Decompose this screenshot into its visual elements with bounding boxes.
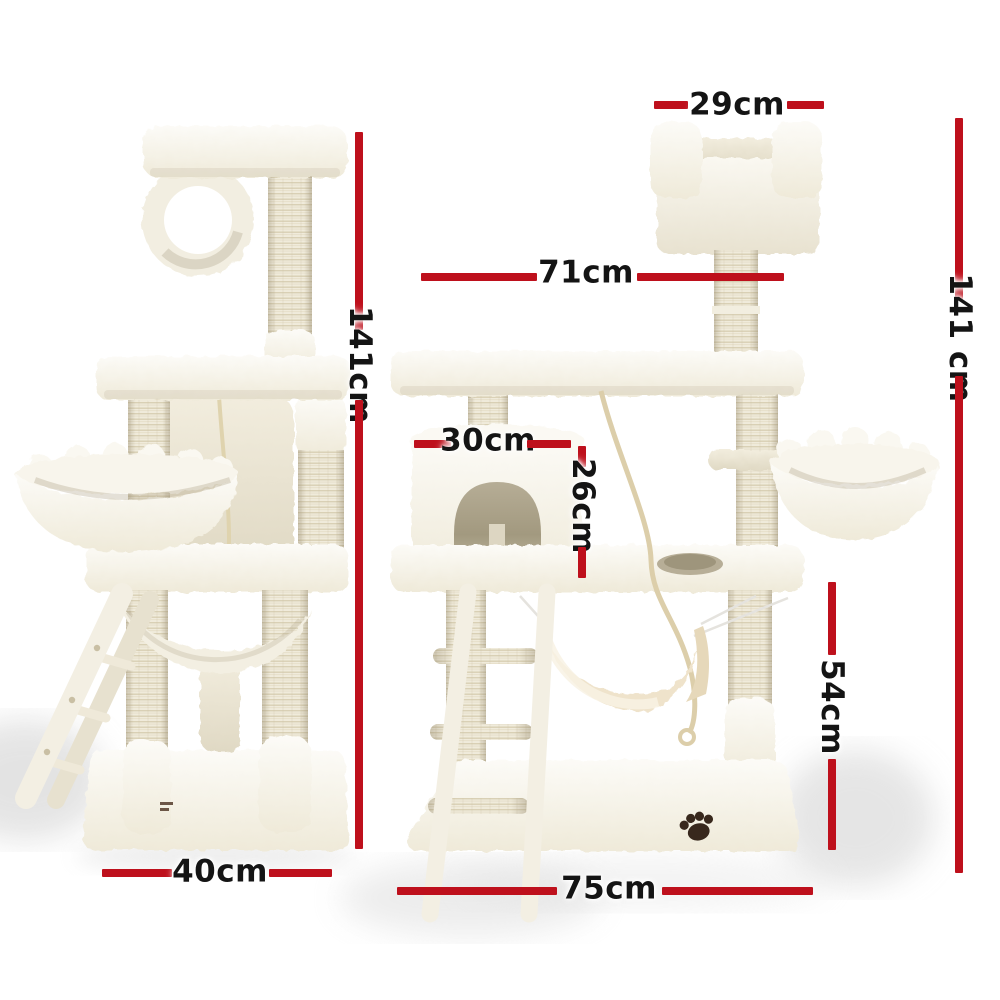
- dimension-line-segment: [654, 101, 688, 109]
- product-dimension-diagram: 29cm 71cm 141cm 141 cm 30cm 26cm 54cm 40…: [0, 0, 1000, 1000]
- top-perch: [650, 122, 822, 254]
- dimension-line-segment: [421, 273, 537, 281]
- dimension-line-segment: [662, 887, 813, 895]
- dimension-line-segment: [828, 582, 836, 655]
- dimension-label: 71cm: [538, 255, 634, 291]
- hammock-front: [538, 616, 709, 711]
- dimension-line-segment: [102, 869, 172, 877]
- dimension-line-segment: [955, 376, 963, 873]
- dimension-label: 54cm: [814, 659, 850, 755]
- play-ring: [142, 164, 254, 276]
- dimension-label: 40cm: [172, 854, 268, 890]
- basket-front: [770, 427, 940, 540]
- dimension-label: 26cm: [565, 458, 601, 554]
- dimension-label: 75cm: [561, 871, 657, 907]
- dimension-label: 29cm: [689, 87, 785, 123]
- dimension-line-segment: [828, 759, 836, 850]
- dimension-line-segment: [355, 400, 363, 849]
- dimension-label: 30cm: [440, 423, 536, 459]
- dimension-line-segment: [397, 887, 557, 895]
- dimension-line-segment: [637, 273, 784, 281]
- dimension-line-segment: [787, 101, 824, 109]
- cat-tree-illustration: [0, 0, 1000, 1000]
- dimension-line-segment: [355, 132, 363, 330]
- dimension-line-segment: [527, 440, 571, 448]
- dimension-line-segment: [578, 547, 586, 578]
- dimension-line-segment: [269, 869, 332, 877]
